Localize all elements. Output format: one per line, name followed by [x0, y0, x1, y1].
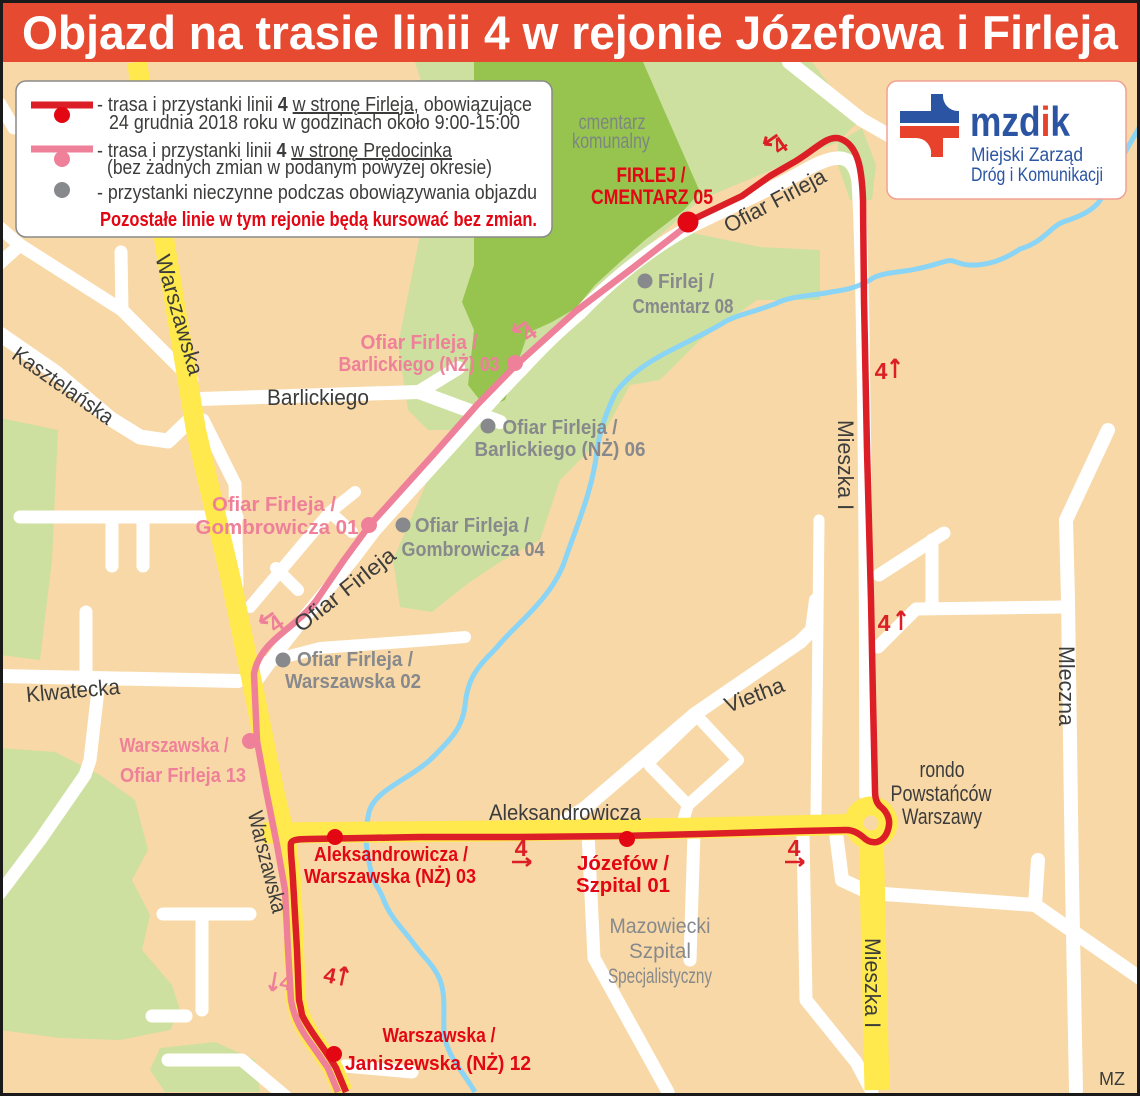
svg-text:Józefów /: Józefów /	[577, 853, 669, 875]
svg-text:Powstańców: Powstańców	[891, 781, 992, 806]
svg-text:Warszawska (NŻ) 03: Warszawska (NŻ) 03	[304, 865, 476, 888]
svg-text:Cmentarz 08: Cmentarz 08	[633, 296, 734, 318]
svg-text:Ofiar Firleja /: Ofiar Firleja /	[415, 515, 529, 537]
svg-text:Janiszewska (NŻ) 12: Janiszewska (NŻ) 12	[345, 1052, 531, 1075]
svg-text:Specjalistyczny: Specjalistyczny	[608, 965, 712, 988]
svg-text:Firlej /: Firlej /	[658, 271, 714, 293]
svg-text:Dróg i Komunikacji: Dróg i Komunikacji	[971, 165, 1103, 186]
svg-text:Warszawy: Warszawy	[902, 804, 982, 829]
svg-text:4: 4	[878, 610, 891, 636]
svg-text:Mieszka I: Mieszka I	[860, 938, 885, 1028]
svg-text:Gombrowicza 01: Gombrowicza 01	[196, 517, 359, 539]
svg-text:Gombrowicza 04: Gombrowicza 04	[402, 539, 546, 561]
svg-text:CMENTARZ 05: CMENTARZ 05	[591, 186, 713, 209]
svg-text:Barlickiego (NŻ) 03: Barlickiego (NŻ) 03	[339, 353, 500, 376]
svg-text:Mleczna: Mleczna	[1054, 646, 1079, 727]
svg-text:- przystanki nieczynne podczas: - przystanki nieczynne podczas obowiązyw…	[97, 182, 537, 204]
svg-text:Ofiar Firleja /: Ofiar Firleja /	[212, 494, 336, 516]
svg-text:Mieszka I: Mieszka I	[833, 420, 858, 510]
svg-text:Ofiar Firleja /: Ofiar Firleja /	[361, 332, 478, 354]
svg-text:4: 4	[875, 358, 888, 384]
svg-text:Aleksandrowicza: Aleksandrowicza	[489, 800, 642, 825]
svg-text:24 grudnia 2018 roku w godzina: 24 grudnia 2018 roku w godzinach około 9…	[109, 112, 520, 134]
svg-text:MZ: MZ	[1099, 1069, 1125, 1089]
svg-text:FIRLEJ /: FIRLEJ /	[617, 164, 686, 187]
svg-text:Warszawska /: Warszawska /	[383, 1025, 496, 1047]
svg-text:komunalny: komunalny	[572, 130, 650, 153]
svg-text:Ofiar Firleja 13: Ofiar Firleja 13	[120, 765, 246, 787]
svg-text:Warszawska 02: Warszawska 02	[285, 671, 421, 693]
svg-text:Objazd na trasie linii 4 w rej: Objazd na trasie linii 4 w rejonie Józef…	[22, 6, 1119, 59]
svg-text:Ofiar Firleja /: Ofiar Firleja /	[297, 649, 413, 671]
svg-text:mzdik: mzdik	[970, 98, 1071, 145]
svg-text:Ofiar Firleja /: Ofiar Firleja /	[503, 417, 618, 439]
svg-text:Pozostałe linie w tym rejonie: Pozostałe linie w tym rejonie będą kurso…	[100, 209, 537, 231]
svg-text:4: 4	[515, 835, 528, 861]
svg-text:Miejski Zarząd: Miejski Zarząd	[971, 145, 1083, 166]
svg-text:Mazowiecki: Mazowiecki	[610, 915, 711, 938]
svg-text:4: 4	[788, 835, 801, 861]
svg-text:Barlickiego (NŻ) 06: Barlickiego (NŻ) 06	[475, 438, 646, 461]
svg-text:Warszawska /: Warszawska /	[120, 735, 229, 757]
svg-text:(bez żadnych zmian w podanym p: (bez żadnych zmian w podanym powyżej okr…	[107, 157, 492, 179]
svg-text:Aleksandrowicza /: Aleksandrowicza /	[314, 844, 468, 866]
svg-text:Szpital 01: Szpital 01	[576, 875, 670, 897]
svg-text:Szpital: Szpital	[629, 940, 691, 963]
svg-text:Barlickiego: Barlickiego	[267, 385, 369, 410]
svg-text:rondo: rondo	[920, 757, 965, 782]
